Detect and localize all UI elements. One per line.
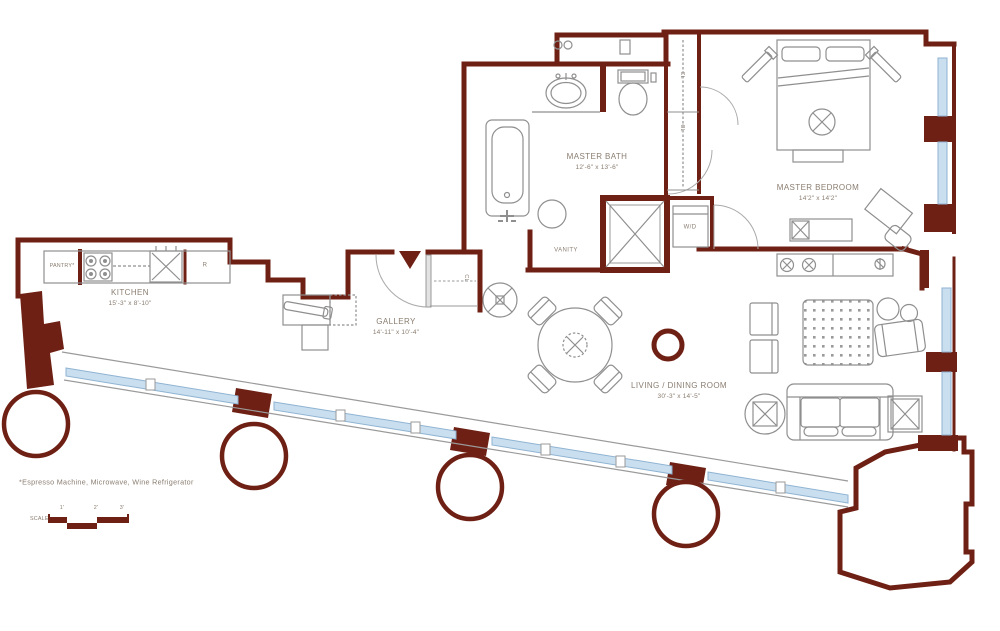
entry-direction-triangle (399, 251, 421, 269)
round-side-table (901, 305, 918, 322)
washer-dryer-label: W/D (684, 224, 697, 233)
left-end-pier (20, 291, 64, 389)
room-label-gallery: GALLERY 14'-11" x 10'-4" (373, 316, 419, 338)
sink-wall (600, 66, 606, 112)
scale-tick-3: 3' (120, 504, 124, 512)
living-east-pier-mid (926, 352, 957, 372)
bath-hall-door-arc (668, 150, 712, 194)
scale-tick-1: 1' (60, 504, 64, 512)
bedroom-dresser (790, 219, 852, 241)
entry-door-arc (376, 255, 428, 307)
bed (777, 40, 870, 150)
bedroom-east-pier-low (924, 204, 956, 232)
room-dims: 14'2" x 14'2" (777, 194, 860, 204)
bed-bench (793, 150, 843, 162)
bedroom-furniture (667, 40, 913, 252)
room-name: GALLERY (373, 316, 419, 328)
living-east-wall-top (920, 250, 929, 288)
pillow (826, 47, 864, 61)
dining-set (526, 295, 623, 394)
room-dims: 30'-3" x 14'-5" (631, 392, 727, 402)
floor-plan-canvas: MASTER BATH 12'-6" x 13'-6" MASTER BEDRO… (0, 0, 1000, 631)
bedroom-closet-label-1: CL (678, 71, 686, 78)
gallery-console (283, 295, 356, 350)
window-strip-2 (274, 402, 456, 439)
pillow (782, 47, 820, 61)
adjacent-footprint-outline (840, 438, 972, 588)
room-name: MASTER BATH (567, 151, 628, 163)
gallery-bench (302, 325, 328, 350)
vanity-stool (538, 200, 566, 228)
entry-closet-interior (430, 281, 478, 306)
round-side-table (877, 298, 899, 320)
living-east-window-2 (942, 372, 951, 435)
bedroom-north-wall (664, 32, 954, 44)
sofa (787, 384, 893, 440)
room-dims: 12'-6" x 13'-6" (567, 163, 628, 173)
armchair (874, 319, 926, 357)
room-name: MASTER BEDROOM (777, 182, 860, 194)
column-4 (654, 482, 718, 546)
interior-column (654, 331, 682, 359)
bath-upper-room (557, 35, 666, 64)
bedroom-east-window-1 (938, 58, 947, 116)
room-label-living-dining: LIVING / DINING ROOM 30'-3" x 14'-5" (631, 380, 727, 402)
scale-tick-2: 2' (94, 504, 98, 512)
living-east-window-1 (942, 288, 951, 352)
refrigerator-label: R (203, 262, 208, 271)
bedroom-desk (865, 189, 913, 234)
room-name: KITCHEN (109, 287, 152, 299)
room-label-master-bath: MASTER BATH 12'-6" x 13'-6" (567, 151, 628, 173)
entry-closet-label: CL (462, 274, 470, 281)
bedroom-se-jog (904, 249, 922, 288)
column-1 (4, 392, 68, 456)
room-dims: 15'-3" x 8'-10" (109, 299, 152, 309)
scale-label: SCALE (30, 515, 49, 523)
toilet (618, 70, 656, 115)
column-3 (438, 455, 502, 519)
elevator-shaft (603, 198, 667, 270)
scale-bar (48, 514, 129, 529)
hall-medallion (483, 283, 517, 317)
living-furniture (745, 254, 926, 440)
floor-plan-drawing (0, 0, 1000, 631)
room-name: LIVING / DINING ROOM (631, 380, 727, 392)
bedroom-east-pier-mid (924, 116, 956, 142)
room-label-kitchen: KITCHEN 15'-3" x 8'-10" (109, 287, 152, 309)
bedroom-door-arc (714, 205, 758, 249)
entry-door-leaf (426, 255, 431, 307)
footnote: *Espresso Machine, Microwave, Wine Refri… (19, 478, 194, 489)
nightstand-lamp (740, 46, 777, 83)
nightstand-lamp (865, 46, 902, 83)
window-strip-3 (492, 437, 672, 474)
accent-chair (750, 340, 778, 373)
vanity-label: VANITY (554, 247, 578, 256)
column-2 (222, 424, 286, 488)
bedroom-east-window-2 (938, 142, 947, 204)
accent-chair (750, 303, 778, 335)
room-label-master-bedroom: MASTER BEDROOM 14'2" x 14'2" (777, 182, 860, 204)
bedroom-closet-label-2: CL (678, 124, 686, 131)
closet-door-arc (700, 87, 738, 125)
pantry-label: PANTRY* (50, 262, 75, 270)
area-rug (803, 300, 873, 365)
room-dims: 14'-11" x 10'-4" (373, 328, 419, 338)
